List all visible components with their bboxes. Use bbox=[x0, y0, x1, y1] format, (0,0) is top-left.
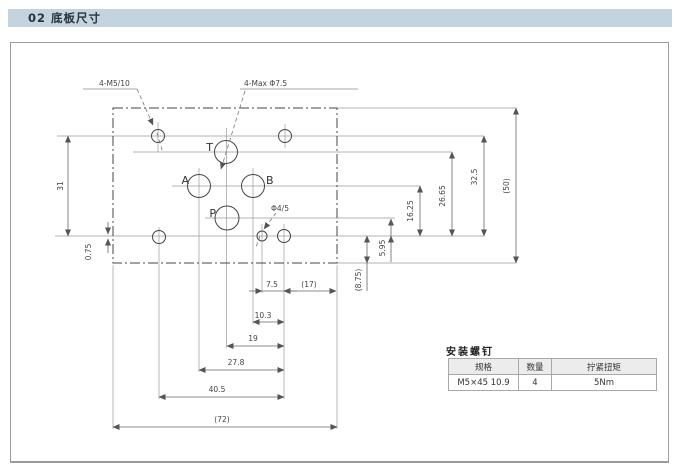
dim-72: (72) bbox=[214, 415, 229, 424]
ports-max-label: 4-Max Φ7.5 bbox=[244, 79, 287, 88]
cell-torque: 5Nm bbox=[552, 375, 657, 391]
dim-40-5: 40.5 bbox=[209, 385, 226, 394]
header-torque: 拧紧扭矩 bbox=[552, 359, 657, 375]
plate-outline bbox=[113, 108, 337, 263]
mounting-screws-table: 规格 数量 拧紧扭矩 M5×45 10.9 4 5Nm bbox=[448, 358, 657, 391]
dim-26-65: 26.65 bbox=[438, 185, 447, 207]
port-a-label: A bbox=[181, 174, 189, 187]
leader-lines bbox=[83, 89, 358, 247]
dim-50: (50) bbox=[502, 178, 511, 193]
dim-31: 31 bbox=[56, 181, 65, 191]
cell-spec: M5×45 10.9 bbox=[449, 375, 519, 391]
dim-10-3: 10.3 bbox=[255, 311, 272, 320]
port-b-label: B bbox=[266, 174, 274, 187]
pin-hole-label: Φ4/5 bbox=[271, 204, 289, 213]
table-row: M5×45 10.9 4 5Nm bbox=[449, 375, 657, 391]
port-t-label: T bbox=[205, 141, 213, 154]
dim-5-95: 5.95 bbox=[378, 239, 387, 256]
dim-7-5: 7.5 bbox=[266, 280, 278, 289]
dim-19: 19 bbox=[248, 334, 258, 343]
dim-8-75: (8.75) bbox=[354, 269, 363, 292]
extension-lines bbox=[55, 108, 516, 429]
dim-32-5: 32.5 bbox=[470, 168, 479, 185]
drawing-labels: 4-M5/10 4-Max Φ7.5 Φ4/5 T A B P 7.5 (17)… bbox=[56, 79, 511, 424]
fixing-holes-label: 4-M5/10 bbox=[99, 79, 130, 88]
technical-drawing: 4-M5/10 4-Max Φ7.5 Φ4/5 T A B P 7.5 (17)… bbox=[0, 0, 680, 471]
dim-16-25: 16.25 bbox=[406, 200, 415, 222]
mounting-screws-title: 安装螺钉 bbox=[446, 343, 494, 358]
dim-17: (17) bbox=[301, 280, 316, 289]
dim-27-8: 27.8 bbox=[228, 358, 245, 367]
header-spec: 规格 bbox=[449, 359, 519, 375]
header-quantity: 数量 bbox=[519, 359, 552, 375]
cell-quantity: 4 bbox=[519, 375, 552, 391]
dim-0-75: 0.75 bbox=[84, 243, 93, 260]
port-p-label: P bbox=[209, 207, 216, 220]
table-header-row: 规格 数量 拧紧扭矩 bbox=[449, 359, 657, 375]
